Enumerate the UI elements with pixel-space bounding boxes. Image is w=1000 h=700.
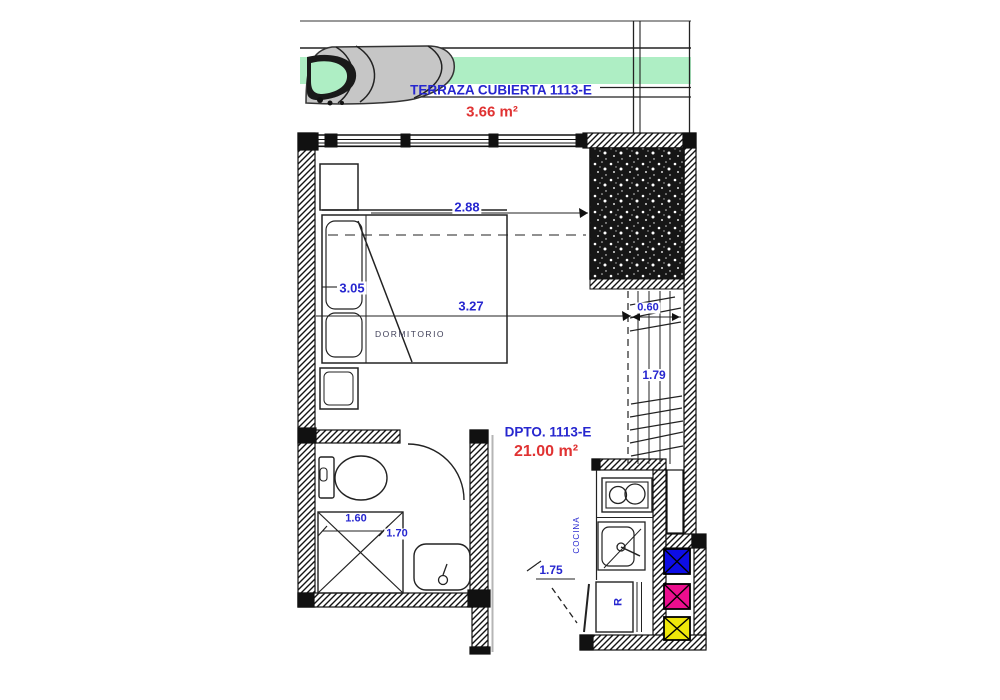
bathroom: [318, 444, 470, 593]
floor-plan-canvas: TERRAZA CUBIERTA 1113-E 3.66 m² DPTO. 11…: [0, 0, 1000, 700]
dim-bath-width: 1.60: [343, 514, 368, 525]
wall-connector: [666, 534, 692, 548]
fridge-label: R: [614, 598, 625, 606]
unit-label: DPTO. 1113-E: [505, 425, 592, 439]
bathroom-door-arc: [408, 444, 464, 500]
dim-bath-length: 1.70: [384, 529, 409, 540]
window-wall: [315, 134, 587, 147]
wall-cap: [580, 635, 593, 650]
nightstand-top: [320, 164, 358, 210]
kitchen-sink: [598, 522, 645, 570]
wall-cap: [470, 430, 488, 443]
dim-closet-width: 0.60: [635, 303, 660, 314]
dim-bed-length: 3.05: [337, 282, 366, 295]
kitchen: [596, 470, 653, 632]
lower-right-wall: [694, 548, 706, 648]
dim-entry-width: 1.75: [537, 564, 564, 576]
entry-door-swing: [552, 588, 577, 623]
structural-column: [590, 148, 684, 289]
top-right-wall: [583, 133, 696, 148]
window-mullion: [401, 134, 410, 147]
cooktop-burner: [625, 484, 645, 504]
window-mullion: [576, 134, 587, 147]
terrace-label: TERRAZA CUBIERTA 1113-E: [410, 83, 592, 97]
wall-cap: [592, 459, 600, 470]
dim-bedroom-length: 3.27: [456, 300, 485, 313]
bathroom-bottom-wall: [298, 593, 488, 607]
left-wall: [298, 133, 315, 607]
entry-door-leaf: [584, 584, 589, 632]
fridge: [596, 582, 633, 632]
wall-cap: [692, 534, 706, 548]
unit-area: 21.00 m²: [514, 444, 578, 460]
entry-wall-leg: [472, 607, 488, 647]
window-mullion: [325, 134, 337, 147]
kitchen-top-wall: [592, 459, 666, 470]
right-outer-wall: [684, 148, 696, 537]
wall-cap: [298, 593, 314, 607]
bedroom-label: DORMITORIO: [375, 330, 445, 339]
bathroom-right-wall: [470, 430, 488, 593]
kitchen-label: COCINA: [573, 516, 581, 553]
utility-ducts: [664, 549, 690, 640]
pillow: [326, 313, 362, 357]
window-mullion: [489, 134, 498, 147]
dim-bed-width: 2.88: [452, 201, 481, 214]
wall-cap: [468, 590, 490, 607]
bathroom-top-wall: [315, 430, 400, 443]
wall-cap: [298, 428, 316, 443]
bath-sink: [414, 544, 470, 590]
bath-sink-drain: [439, 576, 448, 585]
terrace-area: 3.66 m²: [466, 105, 518, 120]
wall-cap: [470, 647, 490, 654]
wall-niche: [667, 470, 683, 533]
cooktop-burner: [610, 487, 627, 504]
toilet-bowl: [335, 456, 387, 500]
pillow: [326, 221, 362, 309]
dim-closet-length: 1.79: [640, 369, 667, 381]
